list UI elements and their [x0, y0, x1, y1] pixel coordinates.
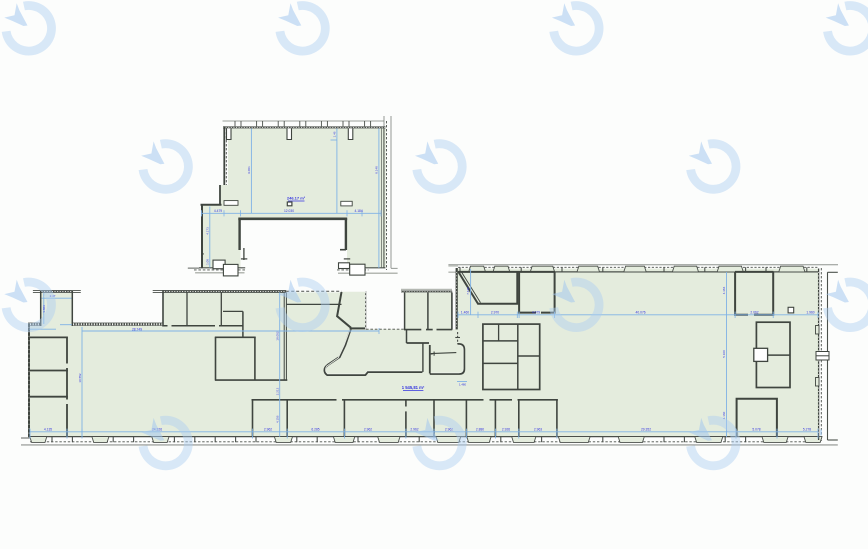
- svg-text:2.962: 2.962: [410, 428, 418, 432]
- svg-text:1.960: 1.960: [806, 311, 814, 315]
- svg-text:40.076: 40.076: [636, 311, 646, 315]
- svg-text:1.683: 1.683: [42, 305, 46, 313]
- svg-text:4.135: 4.135: [44, 428, 52, 432]
- svg-text:29.352: 29.352: [641, 428, 651, 432]
- svg-text:5.278: 5.278: [803, 428, 811, 432]
- svg-text:6.285: 6.285: [311, 428, 319, 432]
- svg-text:5.100: 5.100: [722, 350, 726, 358]
- svg-text:1.08: 1.08: [206, 259, 210, 265]
- svg-text:1 545,81 m²: 1 545,81 m²: [402, 385, 425, 390]
- svg-text:2.062: 2.062: [750, 311, 758, 315]
- svg-text:8.148: 8.148: [375, 166, 379, 174]
- svg-text:2.970: 2.970: [491, 311, 499, 315]
- svg-text:4.173: 4.173: [206, 227, 210, 235]
- svg-text:1.460: 1.460: [461, 311, 469, 315]
- svg-text:12.030: 12.030: [284, 209, 294, 213]
- svg-text:4.479: 4.479: [214, 209, 222, 213]
- svg-text:2.926: 2.926: [502, 428, 510, 432]
- svg-text:28.749: 28.749: [132, 328, 142, 332]
- svg-text:2.212: 2.212: [275, 387, 279, 395]
- svg-text:9.061: 9.061: [247, 166, 251, 174]
- svg-text:4.156: 4.156: [275, 415, 279, 423]
- svg-text:7.440: 7.440: [466, 287, 470, 295]
- svg-text:18.052: 18.052: [275, 331, 279, 341]
- svg-text:1.46: 1.46: [333, 131, 337, 137]
- svg-text:246.17 m²: 246.17 m²: [287, 195, 306, 200]
- svg-text:2.962: 2.962: [364, 428, 372, 432]
- svg-text:5.078: 5.078: [752, 428, 760, 432]
- svg-text:2.963: 2.963: [534, 428, 542, 432]
- svg-text:2.880: 2.880: [476, 428, 484, 432]
- svg-text:1.480: 1.480: [459, 382, 466, 386]
- svg-text:2.962: 2.962: [264, 428, 272, 432]
- svg-text:10.552: 10.552: [78, 373, 82, 383]
- svg-text:4.384: 4.384: [722, 286, 726, 294]
- svg-text:4.184: 4.184: [354, 209, 362, 213]
- svg-text:4.079: 4.079: [532, 311, 540, 315]
